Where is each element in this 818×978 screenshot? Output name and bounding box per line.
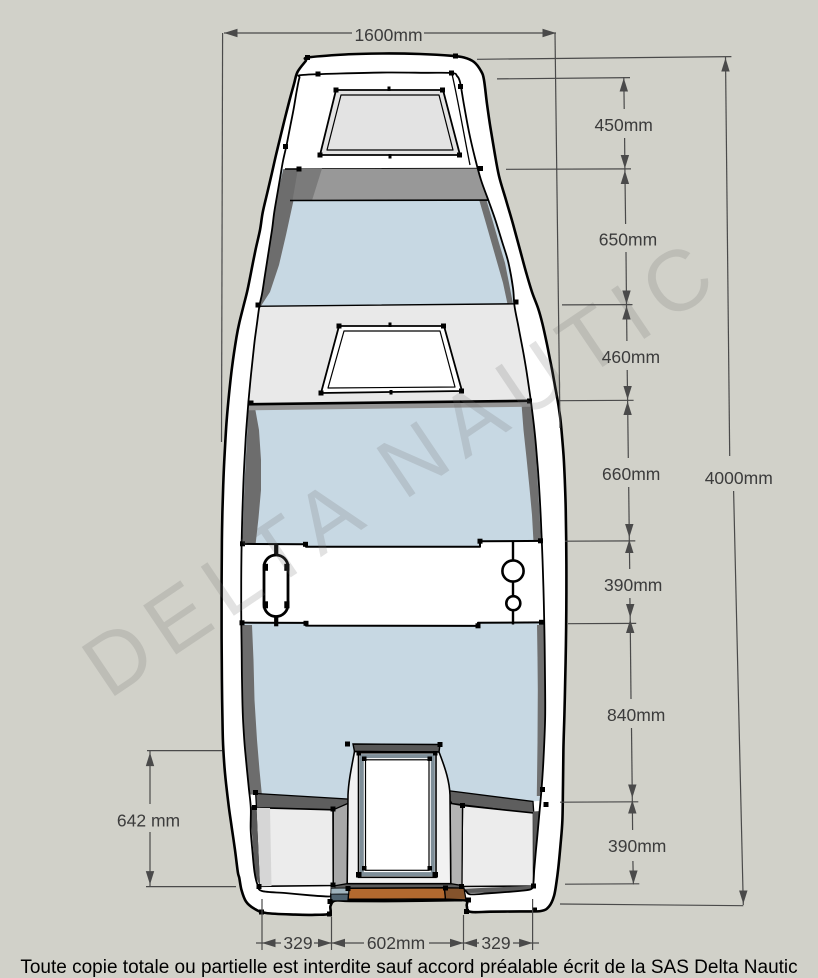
svg-text:660mm: 660mm <box>602 464 660 484</box>
svg-text:840mm: 840mm <box>607 705 665 725</box>
svg-text:450mm: 450mm <box>595 115 653 135</box>
svg-text:1600mm: 1600mm <box>354 25 422 45</box>
svg-text:460mm: 460mm <box>602 347 660 367</box>
svg-text:Toute copie totale ou partiell: Toute copie totale ou partielle est inte… <box>20 957 797 978</box>
svg-text:329: 329 <box>481 933 510 953</box>
svg-text:329: 329 <box>283 933 312 953</box>
svg-text:4000mm: 4000mm <box>705 468 773 488</box>
svg-text:602mm: 602mm <box>367 933 425 953</box>
svg-text:642 mm: 642 mm <box>117 811 180 831</box>
svg-text:390mm: 390mm <box>604 575 662 595</box>
svg-text:390mm: 390mm <box>608 836 666 856</box>
svg-text:650mm: 650mm <box>599 230 657 250</box>
